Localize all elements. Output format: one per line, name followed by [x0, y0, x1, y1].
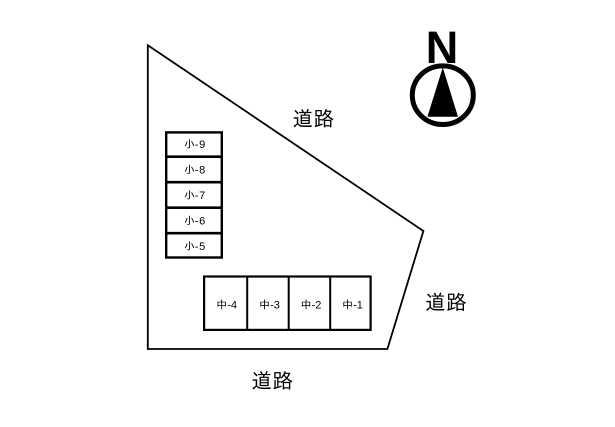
- svg-text:-7: -7: [195, 190, 206, 202]
- svg-text:-4: -4: [227, 300, 237, 312]
- svg-text:-3: -3: [270, 300, 280, 312]
- svg-text:-5: -5: [195, 241, 206, 253]
- svg-text:-2: -2: [312, 300, 322, 312]
- svg-text:-9: -9: [195, 139, 206, 151]
- svg-text:-8: -8: [195, 164, 206, 176]
- svg-text:-6: -6: [195, 215, 206, 227]
- svg-text:-1: -1: [353, 300, 363, 312]
